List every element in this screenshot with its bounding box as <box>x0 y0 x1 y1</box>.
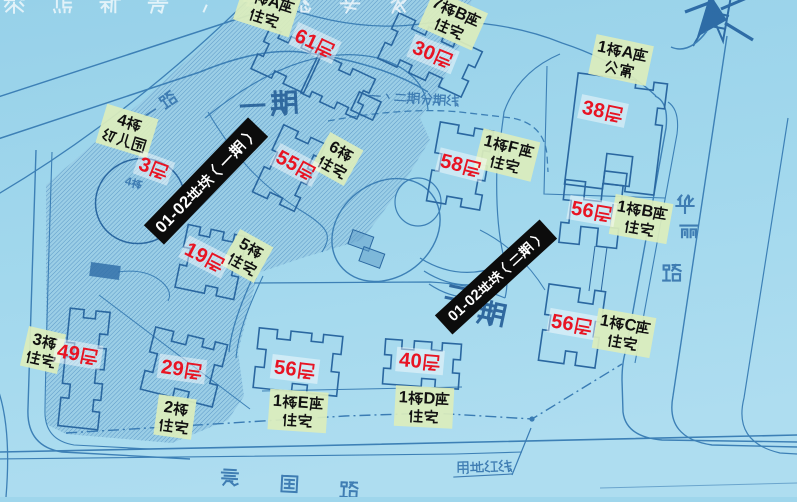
svg-text:E: E <box>297 393 309 412</box>
svg-text:0: 0 <box>410 350 423 373</box>
svg-text:1: 1 <box>272 392 282 411</box>
svg-text:D: D <box>423 389 436 408</box>
svg-text:1: 1 <box>398 388 408 406</box>
